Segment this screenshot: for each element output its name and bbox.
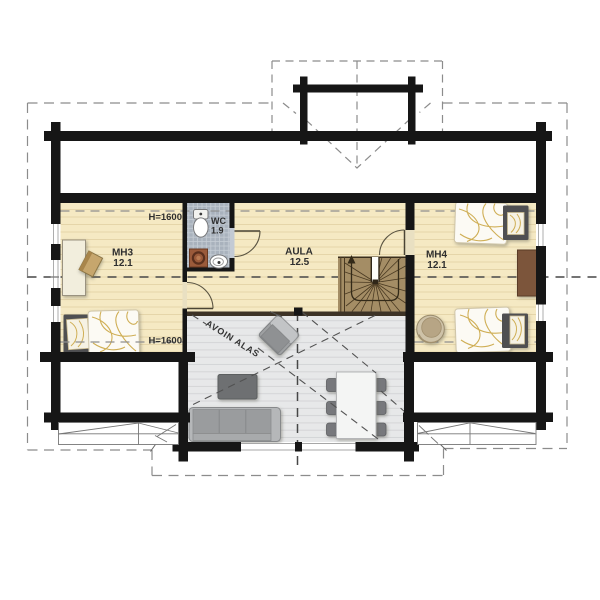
svg-text:12.1: 12.1: [113, 258, 133, 269]
svg-text:12.1: 12.1: [427, 260, 447, 271]
svg-text:WC: WC: [211, 216, 226, 226]
svg-text:1.9: 1.9: [211, 226, 224, 236]
svg-text:12.5: 12.5: [290, 257, 310, 268]
svg-text:H=1600: H=1600: [148, 212, 182, 223]
svg-text:H=1600: H=1600: [148, 336, 182, 347]
